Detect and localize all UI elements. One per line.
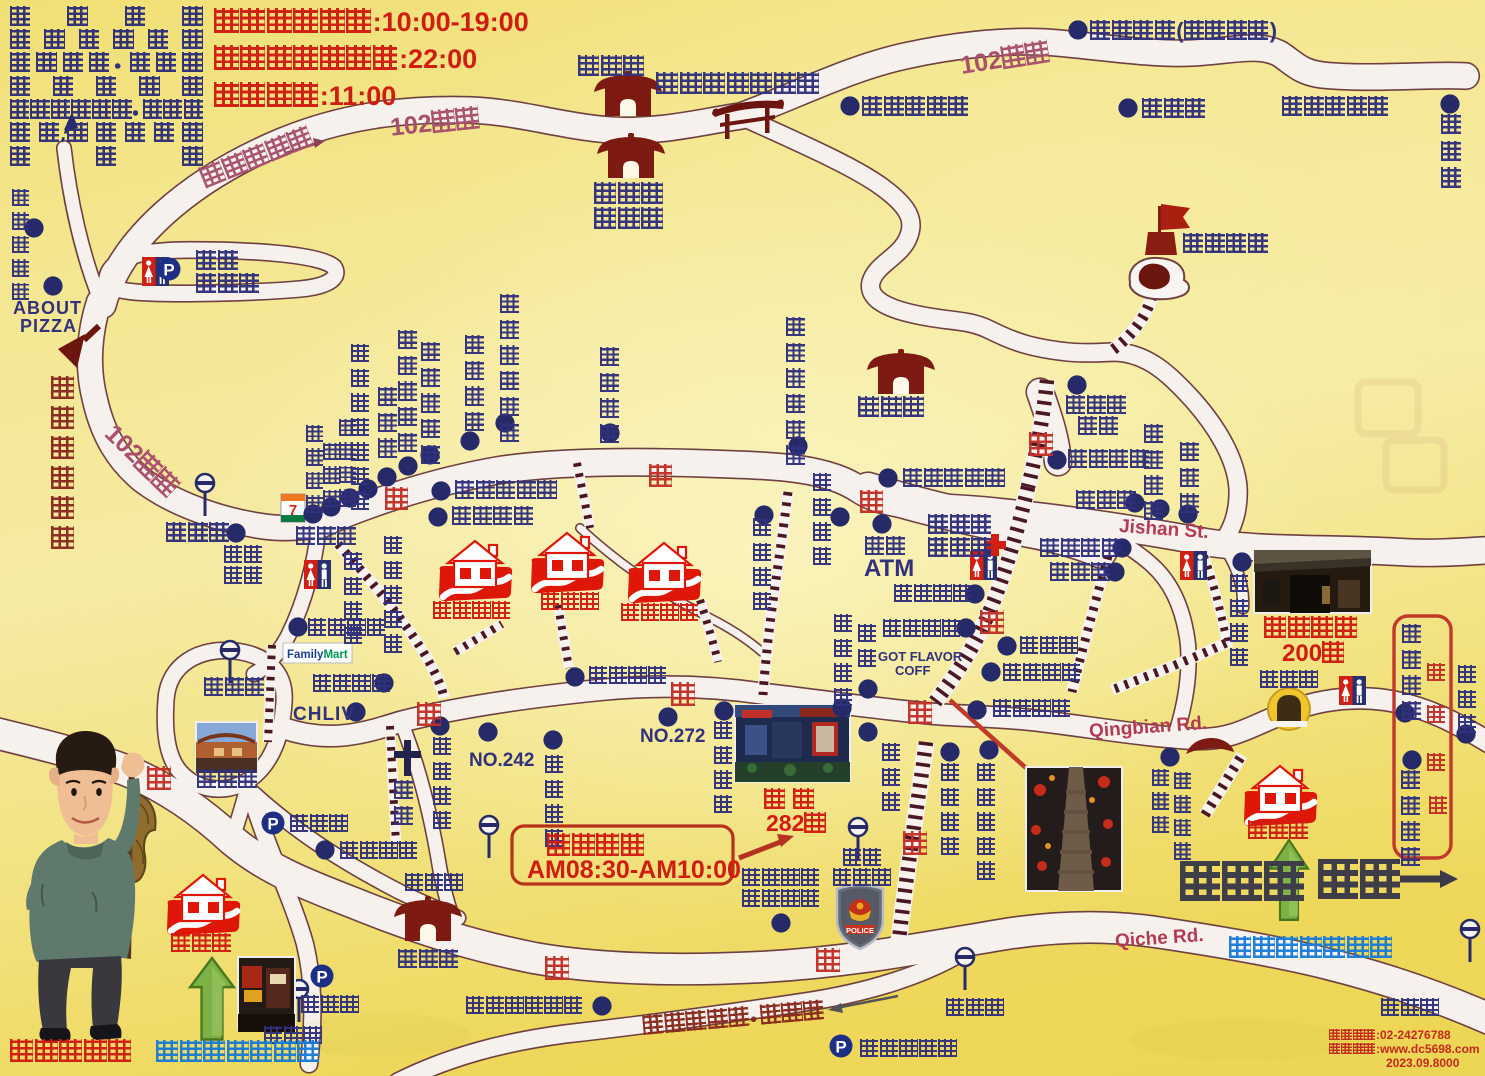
svg-text:FamilyMart: FamilyMart <box>287 649 348 661</box>
svg-text:POLICE: POLICE <box>846 926 874 935</box>
svg-text:7: 7 <box>289 502 297 519</box>
